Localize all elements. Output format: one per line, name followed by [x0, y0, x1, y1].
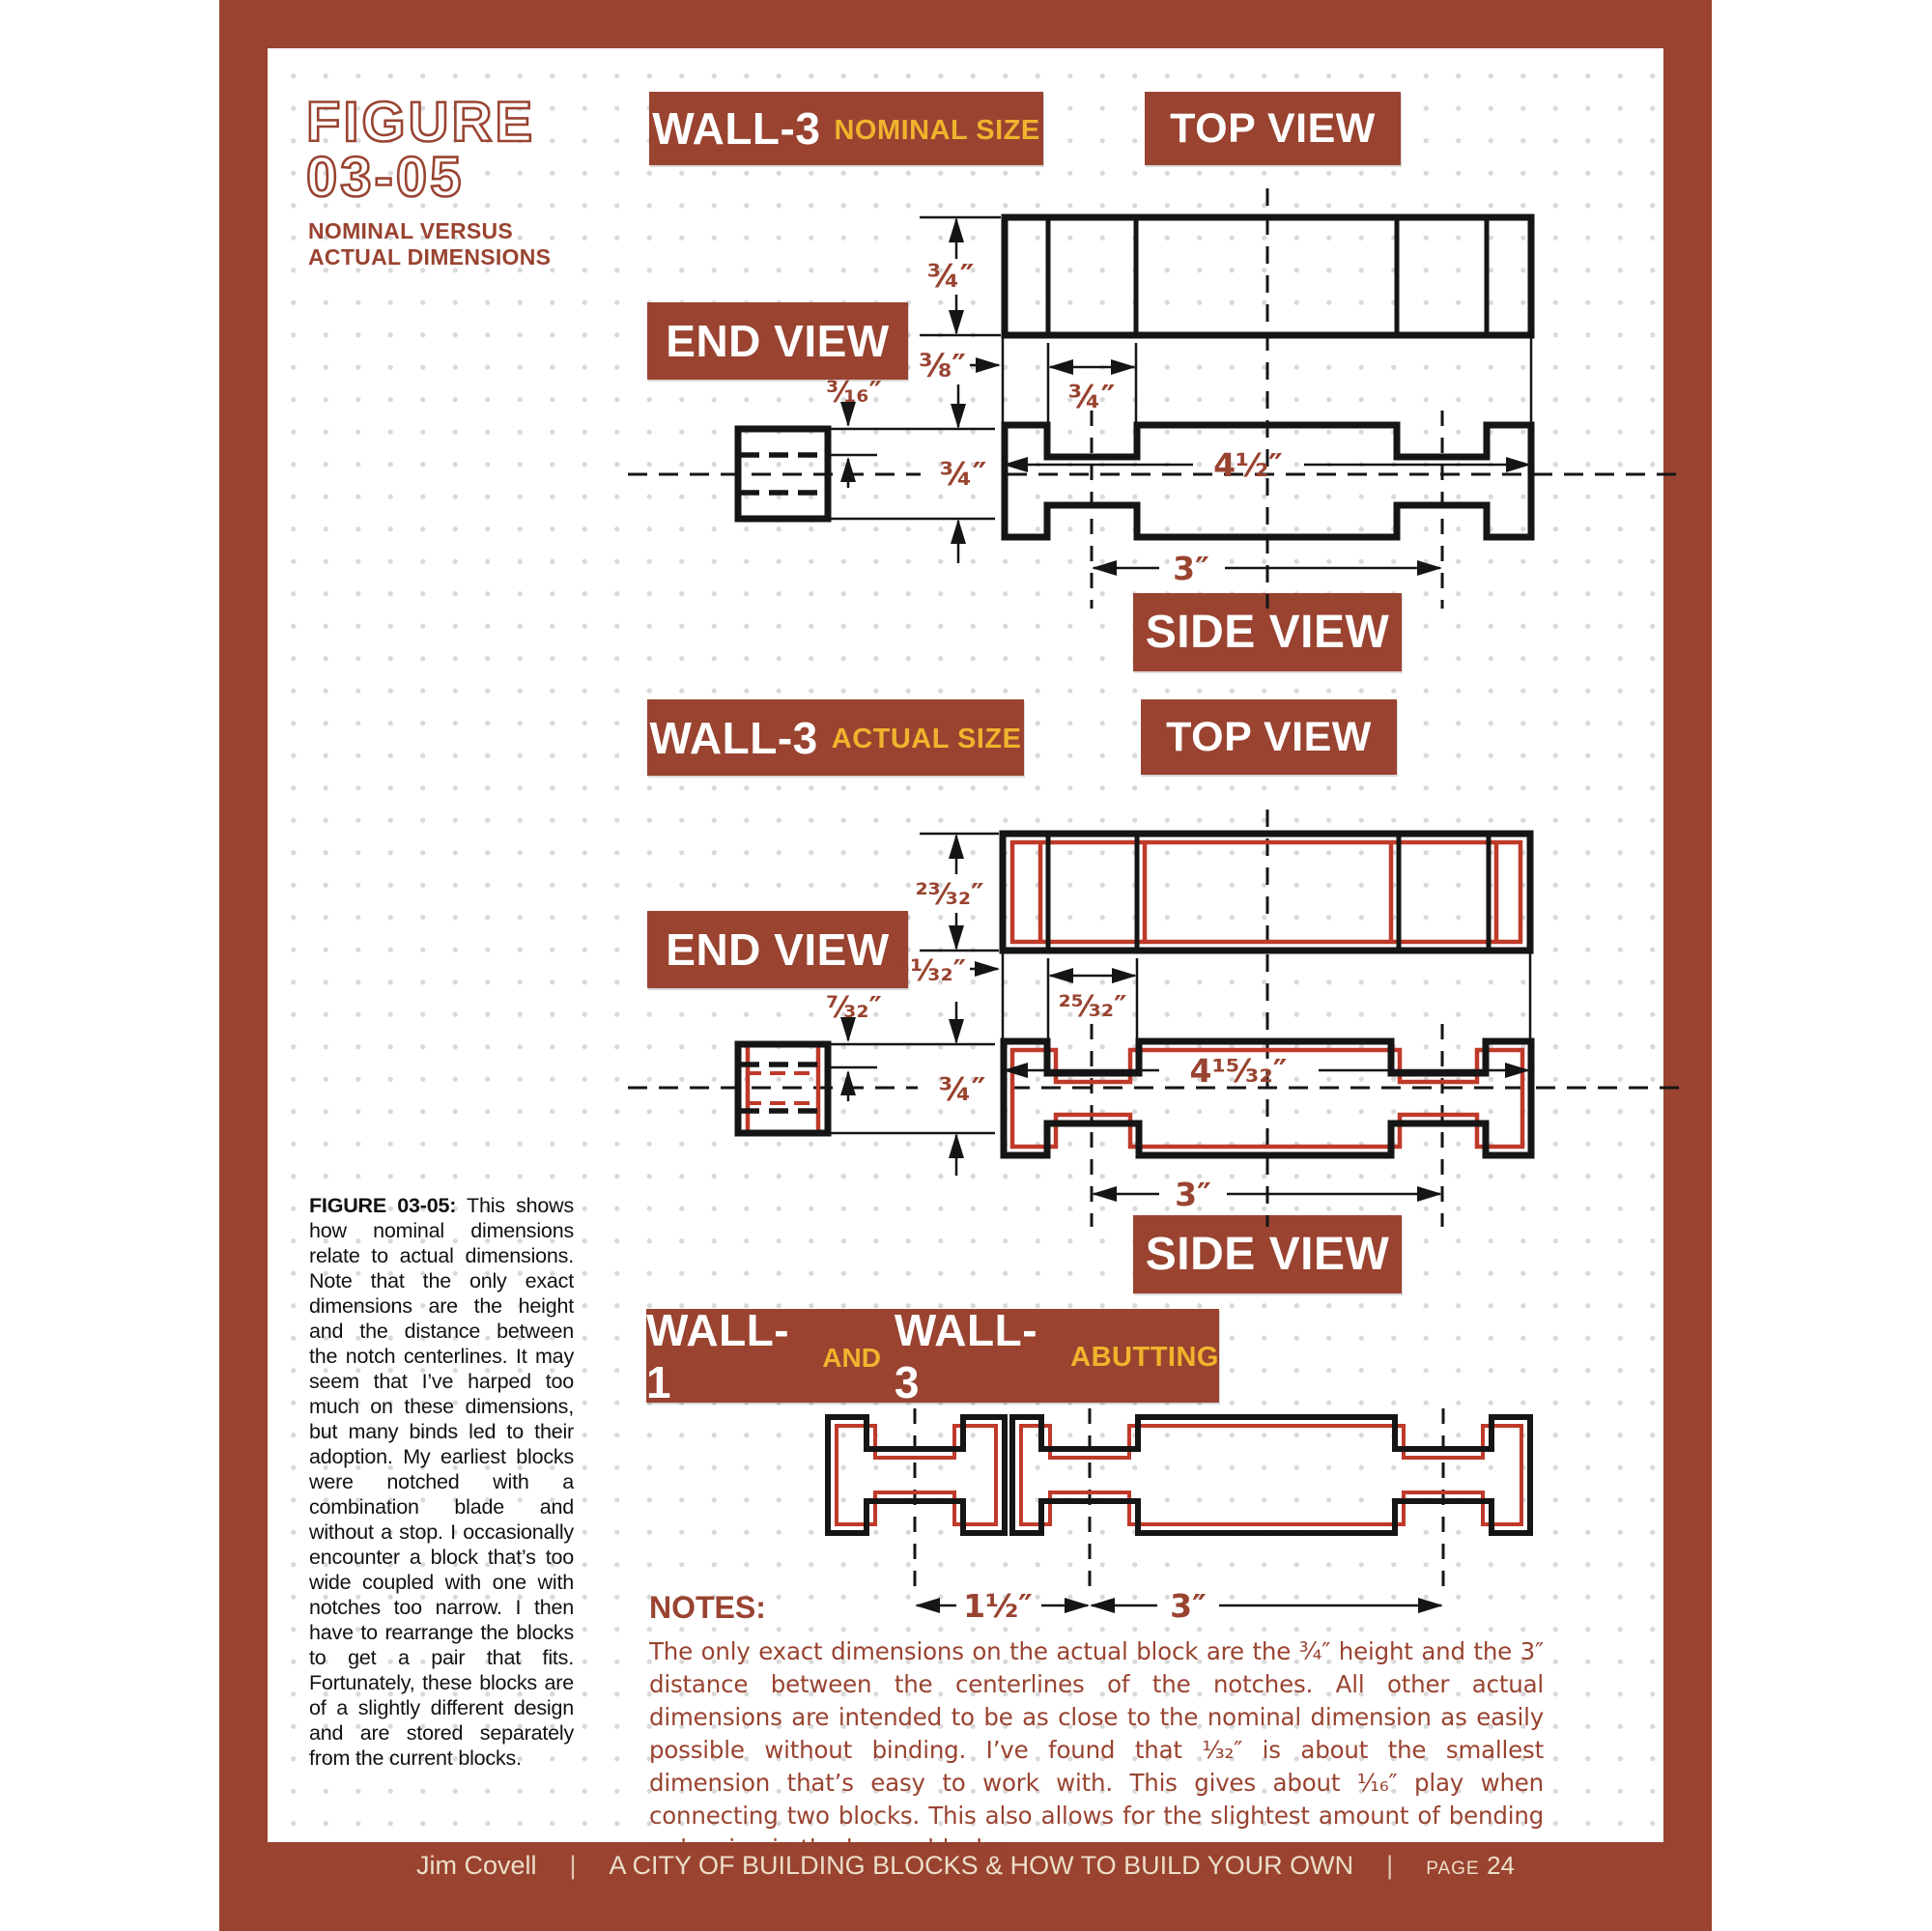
figure-number-line2: 03-05	[306, 150, 535, 205]
wall3-actual-suffix: ACTUAL SIZE	[832, 724, 1022, 755]
actual-end-view	[738, 1044, 828, 1133]
figure-subtitle-line2: ACTUAL DIMENSIONS	[308, 244, 551, 270]
header-wall3-nominal: WALL-3 NOMINAL SIZE	[649, 92, 1043, 165]
top-view-label-nominal: TOP VIEW	[1170, 105, 1376, 153]
dim-nominal-notch-width: ¾″	[1068, 378, 1116, 415]
footer-page-label: PAGE	[1426, 1859, 1479, 1879]
top-view-label-actual: TOP VIEW	[1166, 714, 1372, 761]
dim-nominal-edge-offset: ⅜″	[919, 347, 966, 384]
footer-separator-2: |	[1386, 1851, 1393, 1881]
nominal-side-view	[1005, 425, 1531, 537]
nominal-dimension-lines	[828, 217, 1531, 568]
figure-number: FIGURE 03-05	[306, 95, 535, 205]
wall3-outline	[1012, 1417, 1530, 1533]
actual-dimension-lines	[828, 834, 1530, 1194]
actual-side-view	[1004, 1041, 1531, 1155]
figure-number-line1: FIGURE	[306, 95, 535, 150]
actual-top-view	[1003, 834, 1530, 951]
dim-nominal-overall: 4½″	[1213, 446, 1283, 484]
header-wall3-actual: WALL-3 ACTUAL SIZE	[647, 699, 1024, 776]
dim-actual-notch-spacing: 3″	[1175, 1176, 1211, 1213]
nominal-centerlines	[628, 188, 1686, 609]
page-footer: Jim Covell | A CITY OF BUILDING BLOCKS &…	[268, 1851, 1663, 1881]
side-view-label-nominal: SIDE VIEW	[1146, 606, 1390, 659]
wall3-nominal-suffix: NOMINAL SIZE	[834, 115, 1039, 147]
header-top-view-nominal: TOP VIEW	[1145, 92, 1401, 165]
header-end-view-nominal: END VIEW	[647, 302, 908, 380]
figure-caption: FIGURE 03-05: This shows how nominal dim…	[309, 1193, 574, 1771]
dim-nominal-height: ¾″	[927, 257, 975, 295]
footer-book-title: A CITY OF BUILDING BLOCKS & HOW TO BUILD…	[610, 1851, 1354, 1881]
abutting-suffix: ABUTTING	[1070, 1342, 1219, 1374]
dim-nominal-end-height: ¾″	[940, 455, 987, 493]
figure-caption-lead: FIGURE 03-05:	[309, 1194, 456, 1217]
header-end-view-actual: END VIEW	[647, 911, 908, 988]
dim-actual-end-height: ¾″	[939, 1070, 986, 1108]
dim-actual-notch-width: ²⁵⁄₃₂″	[1059, 990, 1127, 1024]
footer-page-number: 24	[1487, 1851, 1515, 1880]
wall3-actual-title: WALL-3	[650, 712, 818, 764]
figure-caption-body: This shows how nominal dimensions relate…	[309, 1194, 574, 1770]
end-view-label-actual: END VIEW	[666, 923, 889, 976]
header-side-view-nominal: SIDE VIEW	[1133, 593, 1402, 671]
header-side-view-actual: SIDE VIEW	[1133, 1215, 1402, 1293]
footer-author: Jim Covell	[416, 1851, 537, 1881]
actual-centerlines	[628, 809, 1686, 1227]
nominal-top-view	[1005, 217, 1531, 335]
nominal-end-view	[738, 429, 828, 519]
notes-heading: NOTES:	[649, 1590, 1544, 1626]
end-view-label-nominal: END VIEW	[666, 315, 889, 367]
header-abutting: WALL-1 AND WALL-3 ABUTTING	[646, 1309, 1219, 1403]
notes-section: NOTES: The only exact dimensions on the …	[649, 1590, 1544, 1865]
abutting-blocks	[828, 1417, 1530, 1533]
figure-subtitle-line1: NOMINAL VERSUS	[308, 218, 551, 244]
dim-actual-height: ²³⁄₃₂″	[916, 878, 984, 912]
footer-page: PAGE 24	[1426, 1851, 1515, 1881]
footer-separator-1: |	[570, 1851, 577, 1881]
figure-subtitle: NOMINAL VERSUS ACTUAL DIMENSIONS	[308, 218, 551, 270]
dim-nominal-notch-spacing: 3″	[1173, 550, 1209, 587]
abutting-title2: WALL-3	[895, 1304, 1057, 1408]
dim-actual-overall: 4¹⁵⁄₃₂″	[1189, 1052, 1287, 1090]
page: { "figure": { "label_line1": "FIGURE", "…	[0, 0, 1932, 1931]
dim-nominal-end-offset: ³⁄₁₆″	[826, 376, 882, 410]
abutting-joiner: AND	[822, 1343, 881, 1374]
wall3-nominal-title: WALL-3	[652, 102, 820, 155]
abutting-centerlines	[915, 1408, 1443, 1594]
abutting-title1: WALL-1	[646, 1304, 809, 1408]
wall1-outline	[828, 1417, 1005, 1533]
dim-actual-end-offset: ⁷⁄₃₂″	[826, 991, 882, 1025]
notes-body: The only exact dimensions on the actual …	[649, 1635, 1544, 1865]
header-top-view-actual: TOP VIEW	[1141, 699, 1397, 775]
side-view-label-actual: SIDE VIEW	[1146, 1228, 1390, 1281]
content-panel: FIGURE 03-05 NOMINAL VERSUS ACTUAL DIMEN…	[268, 48, 1663, 1842]
